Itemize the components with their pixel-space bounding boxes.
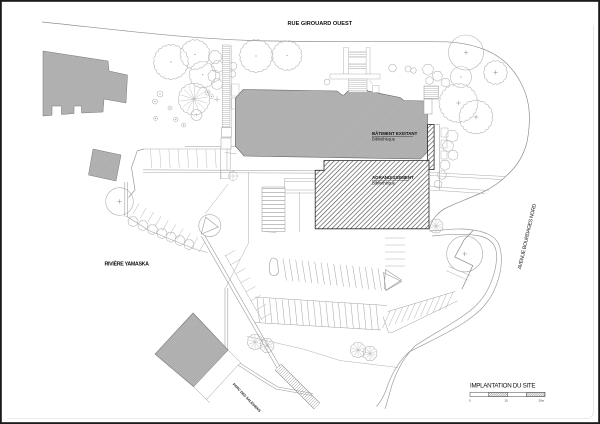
svg-text:Bibliothèque: Bibliothèque xyxy=(372,136,396,141)
svg-text:10: 10 xyxy=(505,399,509,403)
svg-text:RUE GIROUARD OUEST: RUE GIROUARD OUEST xyxy=(288,21,353,27)
svg-text:IMPLANTATION DU SITE: IMPLANTATION DU SITE xyxy=(470,383,536,390)
svg-text:AGRANDISSEMENT: AGRANDISSEMENT xyxy=(372,175,414,180)
svg-text:Bibliothèque: Bibliothèque xyxy=(372,180,396,185)
svg-text:20m: 20m xyxy=(539,399,545,403)
svg-text:RIVIÈRE YAMASKA: RIVIÈRE YAMASKA xyxy=(105,260,150,268)
